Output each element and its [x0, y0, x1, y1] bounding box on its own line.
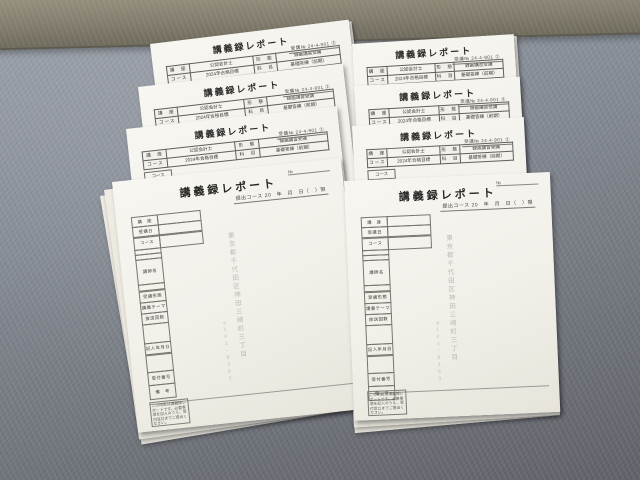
field-value — [388, 235, 433, 250]
fine-print-box: この用紙は講義録レポートです。必要事項を記入のうえ、受付窓口までご提出ください。 — [367, 389, 407, 416]
table-label: コース — [143, 158, 168, 170]
document-big-left: № 講義録レポート 提出コース 20 年 月 日（ ）限 講 座 受講日 コース… — [112, 158, 367, 433]
table-label: コース — [367, 158, 387, 168]
table-label: 科 目 — [440, 154, 460, 164]
field-label: 備 考 — [148, 383, 176, 401]
table-value: 基礎答練（前期） — [460, 151, 514, 163]
photo-of-lecture-report-sheets: 講義録レポート 受講№ 24-4-901 ② 講 座 公認会計士 形 態 録画講… — [0, 0, 640, 480]
field-column: 講 座 受講日 コース 講師名 受講形態 講義テーマ 放送回数 記入年月日 受付… — [131, 211, 220, 400]
header-left-label: 提出コース — [442, 203, 470, 210]
document-big-right: № 講義録レポート 提出コース 20 年 月 日（ ）限 講 座 受講日 コース… — [344, 172, 560, 421]
header-left-label: 提出コース — [235, 193, 263, 202]
field-label: 講師名 — [362, 259, 390, 286]
blank-field — [367, 355, 395, 374]
blank-field — [365, 324, 393, 345]
fine-print-box: この用紙は講義録レポートです。必要事項を記入のうえ、受付窓口までご提出ください。 — [149, 398, 190, 427]
table-value: 2024年合格目標 — [387, 155, 441, 167]
header-right-label: 20 年 月 日（ ）限 — [471, 200, 533, 209]
field-column: 講 座 受講日 コース 講師名 受講形態 講義テーマ 放送回数 記入年月日 受付… — [361, 215, 439, 401]
show-through-address-text: 東京都千代田区神田三崎町三丁目 — [442, 234, 458, 379]
table-label: 科 目 — [235, 148, 260, 160]
field-label: 講師名 — [135, 257, 165, 286]
